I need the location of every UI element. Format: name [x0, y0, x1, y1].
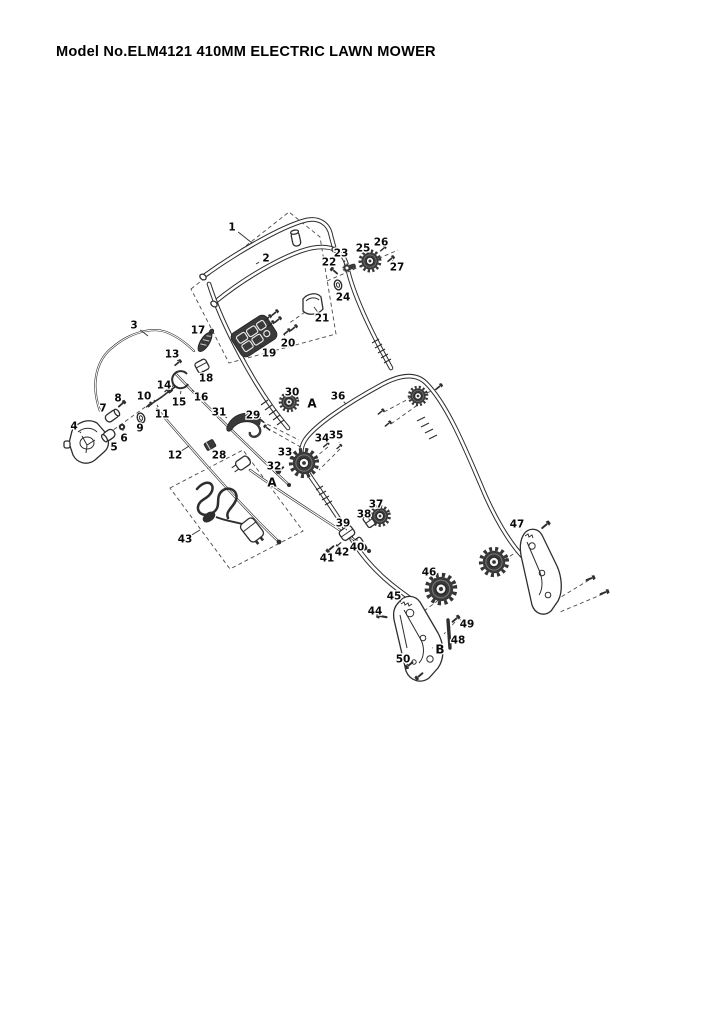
part-callout-4: 4	[70, 421, 77, 433]
part-callout-leader-1	[238, 232, 252, 243]
part-callout-38: 38	[357, 509, 372, 521]
part-callout-9: 9	[136, 423, 143, 435]
handle-bracket-right	[520, 529, 561, 614]
gear-knob	[288, 447, 320, 479]
handle-bracket-left	[394, 596, 443, 681]
part-callout-16: 16	[194, 392, 209, 404]
ratchet-wheel	[478, 546, 510, 578]
part-callout-20: 20	[281, 338, 296, 350]
part-callout-10: 10	[137, 391, 152, 403]
part-callout-1: 1	[228, 222, 235, 234]
spacer-block	[194, 358, 210, 373]
part-callout-7: 7	[99, 403, 106, 415]
part-callout-43: 43	[178, 534, 193, 546]
rods-and-cables	[95, 330, 371, 553]
part-callout-11: 11	[155, 409, 170, 421]
part-callout-49: 49	[460, 619, 475, 631]
switch-cover	[303, 294, 323, 314]
part-callout-45: 45	[387, 591, 402, 603]
screw	[434, 382, 444, 391]
part-callout-leader-11	[157, 405, 158, 407]
part-callout-19: 19	[262, 348, 277, 360]
part-callout-3: 3	[130, 320, 137, 332]
part-callout-14: 14	[157, 380, 172, 392]
part-callout-27: 27	[390, 262, 405, 274]
part-callout-35: 35	[329, 430, 344, 442]
screw	[263, 424, 272, 432]
part-callout-34: 34	[315, 433, 330, 445]
washer	[333, 279, 343, 291]
part-callout-50: 50	[396, 654, 411, 666]
part-callout-41: 41	[320, 553, 335, 565]
part-callout-24: 24	[336, 292, 351, 304]
part-callout-15: 15	[172, 397, 187, 409]
part-callout-47: 47	[510, 519, 525, 531]
part-callout-48: 48	[451, 635, 466, 647]
gear-knob	[407, 385, 429, 407]
ref-letter-A: A	[307, 397, 317, 411]
ref-letter-A: A	[267, 476, 277, 490]
part-callout-18: 18	[199, 373, 214, 385]
part-callout-26: 26	[374, 237, 389, 249]
part-callout-40: 40	[350, 542, 365, 554]
screw	[335, 443, 343, 450]
exploded-parts-diagram: 1234567891011121314151617181920212223242…	[0, 0, 724, 1024]
part-callout-25: 25	[356, 243, 371, 255]
ref-letter-B: B	[435, 643, 444, 657]
part-callout-46: 46	[422, 567, 437, 579]
part-callout-leader-2	[256, 262, 259, 264]
parts	[64, 245, 610, 681]
part-callout-42: 42	[335, 547, 350, 559]
part-callout-leader-43	[192, 530, 200, 535]
part-callout-28: 28	[212, 450, 227, 462]
part-callout-5: 5	[110, 442, 117, 454]
part-callout-33: 33	[278, 447, 293, 459]
part-callout-leader-15	[180, 391, 181, 394]
tube-end-sleeve	[290, 229, 301, 246]
part-callout-21: 21	[315, 313, 330, 325]
part-callout-32: 32	[267, 461, 282, 473]
part-callout-12: 12	[168, 450, 183, 462]
part-callout-31: 31	[212, 407, 227, 419]
part-callout-17: 17	[191, 325, 206, 337]
screw	[540, 520, 552, 531]
part-callout-2: 2	[262, 253, 269, 265]
part-callout-23: 23	[334, 248, 349, 260]
part-callout-36: 36	[331, 391, 346, 403]
part-callout-8: 8	[114, 393, 121, 405]
power-plug	[239, 516, 268, 546]
grip-hatch-lower-right	[417, 417, 437, 439]
part-callout-leader-12	[182, 446, 189, 451]
part-callout-6: 6	[120, 433, 127, 445]
part-callout-39: 39	[336, 518, 351, 530]
part-callout-44: 44	[368, 606, 383, 618]
callout-layer: 1234567891011121314151617181920212223242…	[70, 222, 524, 666]
part-callout-30: 30	[285, 387, 300, 399]
cable-plug-fitting	[230, 455, 251, 474]
part-callout-13: 13	[165, 349, 180, 361]
hinge-pin	[448, 620, 450, 648]
part-callout-29: 29	[246, 410, 261, 422]
